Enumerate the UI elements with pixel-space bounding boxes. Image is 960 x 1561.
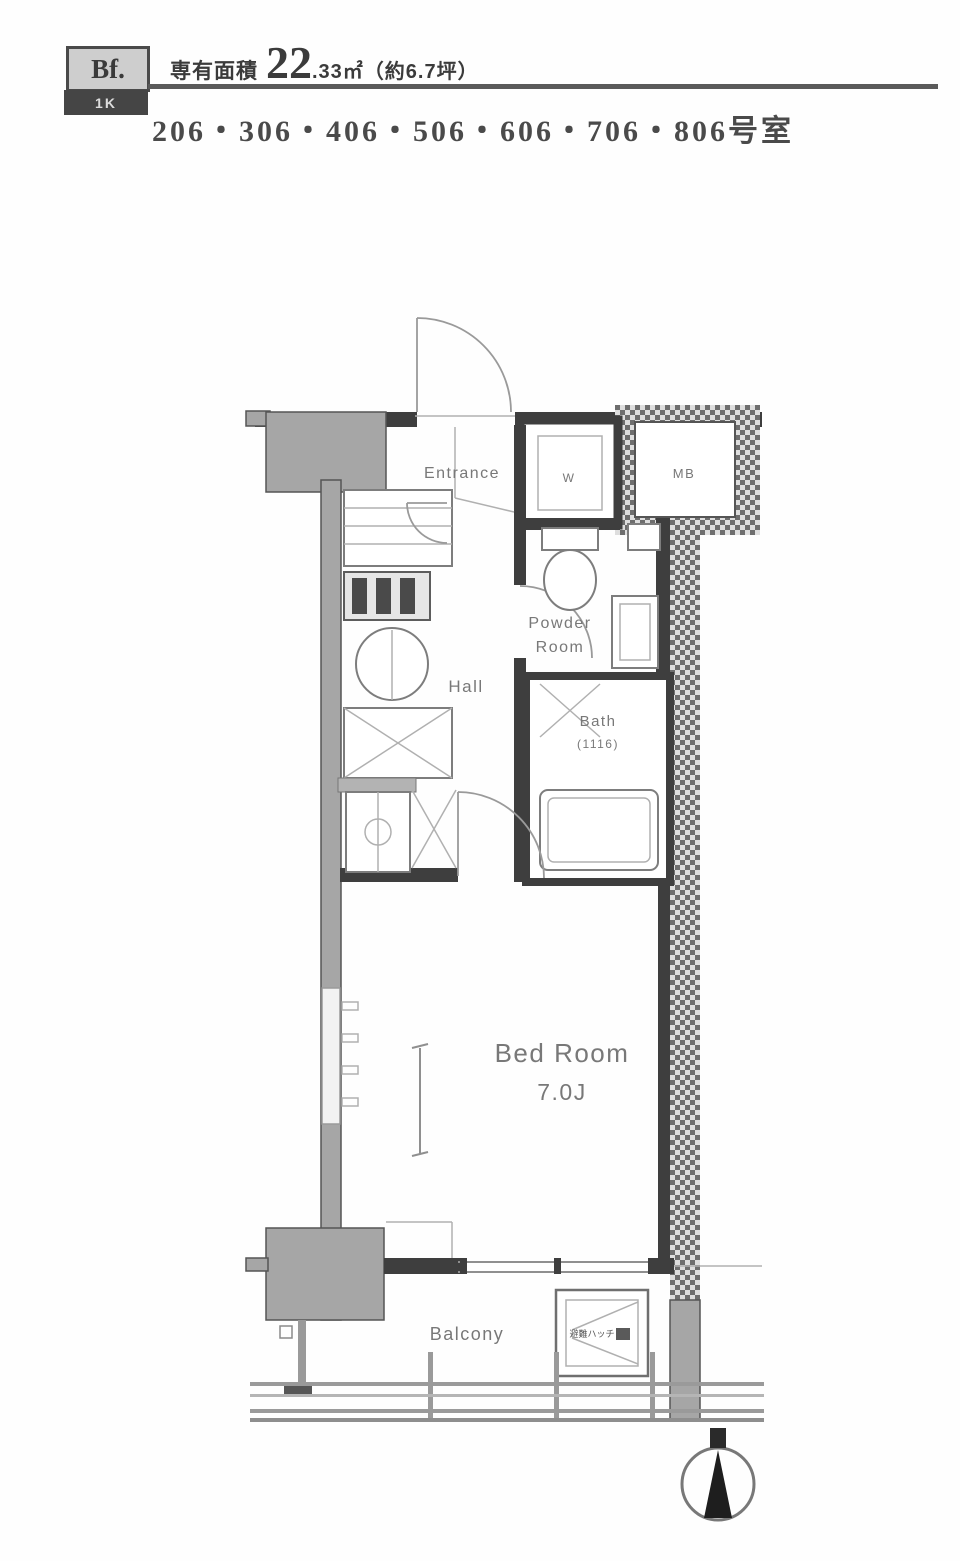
bath-room: Bath (1116): [526, 676, 670, 882]
bedroom: Bed Room 7.0J: [322, 988, 629, 1258]
powder-room: Powder Room: [520, 524, 660, 668]
entrance-label: Entrance: [424, 465, 500, 482]
drain-mark: [280, 1326, 292, 1338]
floorplan-sheet: Bf. 1K 専有面積 22 .33㎡（約6.7坪） 206・306・406・5…: [0, 0, 960, 1561]
toilet-tank: [542, 528, 598, 550]
water-heater: [628, 524, 660, 550]
hall-label: Hall: [448, 677, 483, 696]
bedroom-size-label: 7.0J: [537, 1079, 586, 1105]
evacuation-hatch: 避難ハッチ: [556, 1290, 648, 1376]
entrance-door: [415, 318, 515, 416]
toilet-bowl: [544, 550, 596, 610]
floor-plan: MB W Powder R: [0, 0, 960, 1561]
east-wall-foot: [670, 1300, 700, 1420]
kitchen-fixtures: [338, 490, 452, 872]
hatched-east-wall: [670, 520, 700, 1300]
powder-room-label-1: Powder: [528, 615, 591, 632]
meter-box-label: MB: [673, 466, 696, 481]
bedroom-label: Bed Room: [495, 1038, 630, 1068]
bath-size-label: (1116): [577, 737, 619, 751]
bath-label: Bath: [580, 713, 617, 730]
washer-room: W: [520, 420, 618, 525]
washer-label: W: [563, 471, 576, 485]
evac-hatch-label: 避難ハッチ: [569, 1328, 614, 1339]
west-window: [322, 988, 340, 1124]
shoe-storage: [344, 490, 452, 566]
vanity: [612, 596, 658, 668]
south-window-wall: [384, 1258, 762, 1274]
counter-edge: [338, 778, 416, 792]
meter-box: MB: [615, 405, 760, 535]
balcony-label: Balcony: [430, 1324, 505, 1344]
compass-icon: [682, 1428, 754, 1520]
powder-room-label-2: Room: [536, 639, 585, 656]
bathtub: [540, 790, 658, 870]
